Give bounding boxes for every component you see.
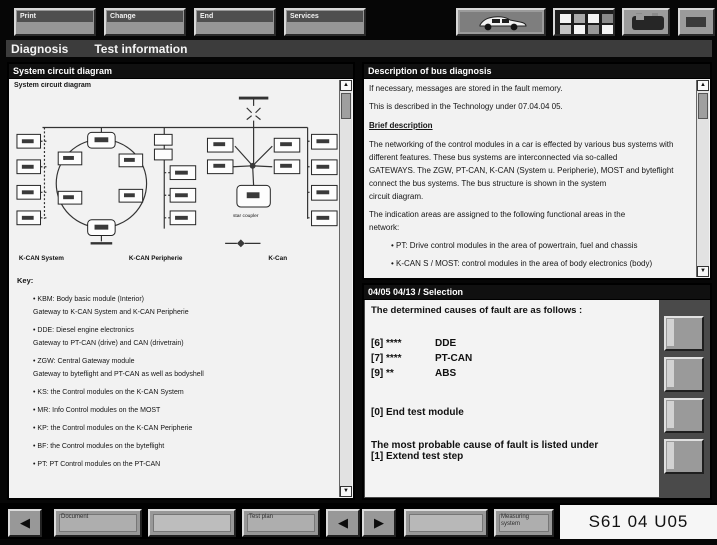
description-line: If necessary, messages are stored in the… (369, 82, 691, 95)
description-line: The indication areas are assigned to the… (369, 208, 691, 221)
fault-cause-code: [9] ** (371, 366, 435, 381)
end-button-label: End (197, 13, 213, 20)
scroll-down-icon[interactable]: ▼ (340, 486, 352, 497)
fault-cause-label: PT-CAN (435, 351, 472, 366)
fault-cause-row[interactable]: [6] **** DDE (371, 336, 653, 351)
test-plan-button[interactable]: Test plan (242, 509, 320, 537)
selection-panel-header: 04/05 04/13 / Selection (364, 285, 710, 300)
page-subtitle: Test information (94, 42, 187, 56)
fault-cause-label: DDE (435, 336, 456, 351)
description-line: network: (369, 221, 691, 234)
print-button-label: Print (17, 13, 36, 20)
fault-cause-code: [7] **** (371, 351, 435, 366)
left-panel-header: System circuit diagram (9, 64, 353, 79)
key-item: • ZGW: Central Gateway module (33, 355, 335, 368)
key-item: • DDE: Diesel engine electronics (33, 324, 335, 337)
scrollbar-thumb[interactable] (341, 93, 351, 119)
next-icon: ▶ (374, 515, 384, 530)
selection-key-4[interactable] (664, 439, 704, 474)
services-button-label: Services (287, 13, 319, 20)
document-id: S61 04 U05 (589, 512, 689, 532)
end-button[interactable]: End (194, 8, 276, 36)
page-previous-button[interactable]: ◀ (326, 509, 360, 537)
test-plan-button-label: Test plan (249, 514, 319, 521)
system-circuit-diagram-panel: System circuit diagram System circuit di… (7, 62, 355, 500)
description-line: connect the bus systems. The bus structu… (369, 177, 691, 190)
left-panel-scrollbar[interactable]: ▲ ▼ (339, 80, 352, 497)
battery-icon[interactable] (622, 8, 670, 36)
key-item: • MR: Info Control modules on the MOST (33, 404, 335, 417)
description-panel: Description of bus diagnosis If necessar… (362, 62, 712, 280)
back-icon: ◀ (20, 515, 30, 530)
keypad-icon[interactable] (553, 8, 615, 36)
key-item-detail: Gateway to byteflight and PT-CAN as well… (33, 368, 335, 381)
toolbar-button-2[interactable] (148, 509, 236, 537)
title-bar: Diagnosis Test information (6, 40, 712, 57)
selection-key-3[interactable] (664, 398, 704, 433)
description-panel-header: Description of bus diagnosis (364, 64, 710, 79)
fault-cause-row[interactable]: [7] **** PT-CAN (371, 351, 653, 366)
brief-description-heading: Brief description (369, 119, 691, 132)
selection-key-1[interactable] (664, 316, 704, 351)
previous-icon: ◀ (338, 515, 348, 530)
star-coupler-label: star coupler (233, 213, 259, 219)
key-heading: Key: (17, 276, 335, 285)
fault-cause-label: ABS (435, 366, 456, 381)
document-id-area: S61 04 U05 (560, 505, 717, 539)
key-item-detail: Gateway to PT-CAN (drive) and CAN (drive… (33, 337, 335, 350)
bottom-toolbar: ◀ Document Test plan ◀ ▶ Measuring syste… (0, 503, 717, 539)
key-item: • KBM: Body basic module (Interior) (33, 293, 335, 306)
car-icon[interactable] (456, 8, 546, 36)
key-item: • KP: the Control modules on the K-CAN P… (33, 422, 335, 435)
fault-causes-intro: The determined causes of fault are as fo… (371, 305, 653, 316)
selection-function-keys (659, 300, 709, 497)
bus-label-1: K-CAN System (19, 255, 64, 262)
key-item: • PT: PT Control modules on the PT-CAN (33, 458, 335, 471)
selection-panel: 04/05 04/13 / Selection The determined c… (362, 283, 712, 500)
measuring-system-button[interactable]: Measuring system (494, 509, 554, 537)
scroll-down-icon[interactable]: ▼ (697, 266, 709, 277)
change-button[interactable]: Change (104, 8, 186, 36)
selection-key-2[interactable] (664, 357, 704, 392)
extend-test-step-option[interactable]: [1] Extend test step (371, 451, 653, 462)
selection-content: The determined causes of fault are as fo… (365, 300, 661, 497)
circuit-diagram: K-CAN System K-CAN Peripherie K-Can star… (15, 94, 341, 269)
key-item-detail: Gateway to K-CAN System and K-CAN Periph… (33, 306, 335, 319)
page-title: Diagnosis (11, 42, 68, 56)
description-bullet: • PT: Drive control modules in the area … (391, 239, 691, 252)
scroll-up-icon[interactable]: ▲ (340, 80, 352, 91)
diagram-caption: System circuit diagram (14, 82, 91, 89)
end-test-module-option[interactable]: [0] End test module (371, 407, 653, 418)
scroll-up-icon[interactable]: ▲ (697, 80, 709, 91)
panel-icon[interactable] (678, 8, 715, 36)
description-text: If necessary, messages are stored in the… (369, 82, 691, 270)
description-line: The networking of the control modules in… (369, 138, 691, 151)
car-icon-graphic (458, 10, 544, 34)
services-button[interactable]: Services (284, 8, 366, 36)
description-line: circuit diagram. (369, 190, 691, 203)
fault-cause-code: [6] **** (371, 336, 435, 351)
description-bullet: • K-CAN S / MOST: control modules in the… (391, 257, 691, 270)
toolbar-button-4[interactable] (404, 509, 488, 537)
print-button[interactable]: Print (14, 8, 96, 36)
description-line: different features. These bus systems ar… (369, 151, 691, 164)
key-item: • KS: the Control modules on the K-CAN S… (33, 386, 335, 399)
back-button[interactable]: ◀ (8, 509, 42, 537)
document-button-label: Document (61, 514, 131, 521)
diagram-key: Key: • KBM: Body basic module (Interior)… (15, 274, 335, 471)
measuring-system-button-label: Measuring system (501, 514, 549, 528)
description-scrollbar[interactable]: ▲ ▼ (696, 80, 709, 277)
key-item: • BF: the Control modules on the bytefli… (33, 440, 335, 453)
page-next-button[interactable]: ▶ (362, 509, 396, 537)
description-line: This is described in the Technology unde… (369, 100, 691, 113)
diagnostic-screen: Print Change End Services (0, 0, 717, 545)
document-button[interactable]: Document (54, 509, 142, 537)
bus-label-2: K-CAN Peripherie (129, 255, 183, 262)
probable-cause-text: The most probable cause of fault is list… (371, 440, 653, 451)
fault-cause-row[interactable]: [9] ** ABS (371, 366, 653, 381)
description-line: GATEWAYS. The ZGW, PT-CAN, K-CAN (System… (369, 164, 691, 177)
bus-label-3: K-Can (268, 255, 287, 262)
change-button-label: Change (107, 13, 136, 20)
scrollbar-thumb[interactable] (698, 93, 708, 119)
